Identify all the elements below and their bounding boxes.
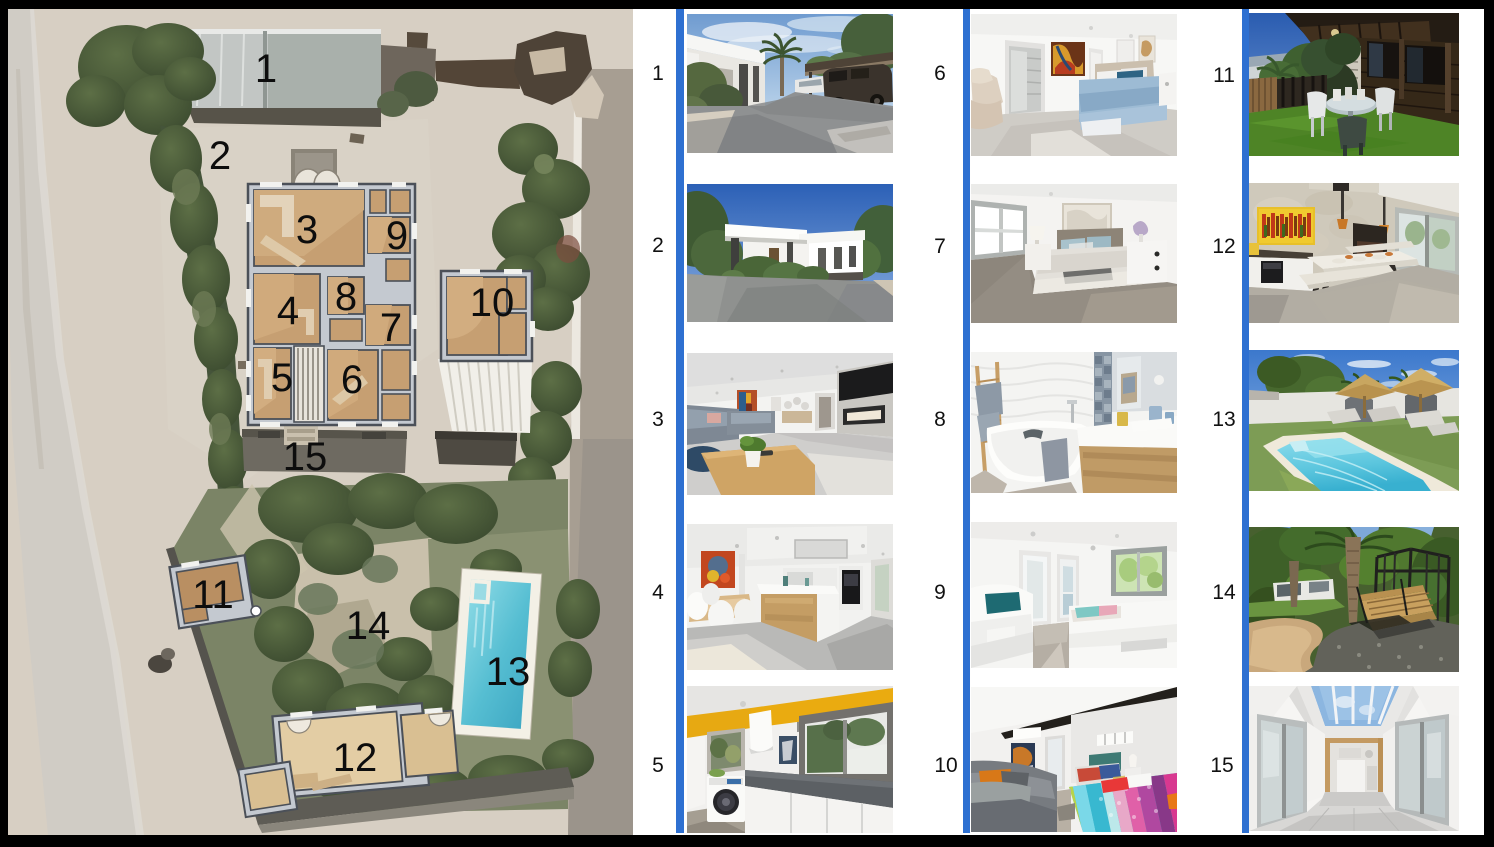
svg-text:2: 2 bbox=[209, 134, 231, 178]
svg-text:6: 6 bbox=[341, 358, 363, 402]
svg-text:12: 12 bbox=[333, 736, 378, 780]
svg-text:14: 14 bbox=[346, 604, 391, 648]
svg-text:15: 15 bbox=[283, 435, 328, 479]
svg-text:3: 3 bbox=[296, 208, 318, 252]
svg-text:8: 8 bbox=[335, 275, 357, 319]
svg-text:11: 11 bbox=[192, 573, 234, 617]
svg-text:9: 9 bbox=[386, 214, 408, 258]
svg-text:5: 5 bbox=[271, 356, 293, 400]
svg-text:13: 13 bbox=[486, 650, 531, 694]
svg-text:4: 4 bbox=[277, 289, 299, 333]
svg-text:7: 7 bbox=[380, 306, 402, 350]
svg-text:10: 10 bbox=[470, 281, 515, 325]
svg-text:1: 1 bbox=[255, 47, 277, 91]
